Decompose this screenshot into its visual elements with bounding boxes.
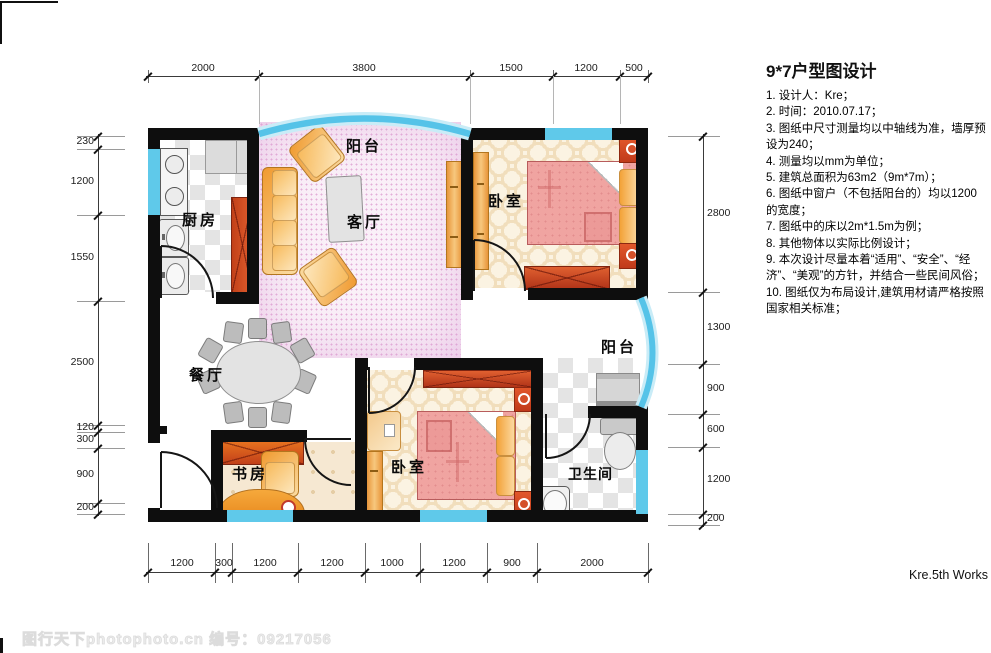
dim-tick: [668, 525, 720, 526]
designer-signature: Kre.5th Works: [868, 568, 988, 582]
dim-label: 2000: [181, 62, 225, 74]
dim-tick: [298, 543, 299, 583]
dim-tick: [648, 543, 649, 583]
dim-line: [703, 134, 704, 527]
dim-line: [146, 572, 650, 573]
dim-tick: [77, 215, 125, 216]
dim-tick: [537, 543, 538, 583]
note-line: 3. 图纸中尺寸测量均以中轴线为准，墙厚预设为240；: [766, 121, 988, 154]
dim-label: 1000: [370, 557, 414, 569]
extension-line: [259, 76, 260, 124]
note-line: 9. 本次设计尽量本着“适用”、“安全”、“经济”、“美观”的方针，并结合一些民…: [766, 252, 988, 285]
bathroom-door: [546, 414, 590, 458]
dim-line: [98, 134, 99, 516]
dim-label: 900: [60, 468, 94, 480]
dim-label: 1550: [60, 251, 94, 263]
room-label-kitchen: 厨房: [182, 209, 218, 230]
dim-tick: [148, 543, 149, 583]
bedroom1-door: [474, 240, 525, 291]
dim-tick: [668, 447, 720, 448]
dim-label: 1200: [160, 557, 204, 569]
dim-label: 2500: [60, 356, 94, 368]
page-title: 9*7户型图设计: [766, 57, 877, 82]
dim-label: 1300: [707, 321, 730, 333]
dim-label: 2000: [570, 557, 614, 569]
note-line: 8. 其他物体以实际比例设计；: [766, 236, 988, 252]
note-line: 1. 设计人：Kre；: [766, 88, 988, 104]
bedroom2-door: [369, 367, 415, 413]
extension-line: [553, 76, 554, 124]
extension-line: [470, 76, 471, 124]
floorplan-page: 阳台 厨房 客厅 卧室 餐厅 书房 卧室 卫生间 阳台 2000 3800 15…: [0, 0, 991, 653]
dim-tick: [668, 136, 720, 137]
note-line: 6. 图纸中窗户（不包括阳台的）均以1200的宽度；: [766, 186, 988, 219]
room-label-balcony-top: 阳台: [346, 135, 382, 156]
room-label-balcony-right: 阳台: [601, 336, 637, 357]
dim-label: 2800: [707, 207, 730, 219]
dim-label: 600: [707, 423, 725, 435]
room-label-living: 客厅: [347, 211, 383, 232]
dim-label: 900: [490, 557, 534, 569]
dim-label: 1500: [489, 62, 533, 74]
dim-label: 300: [60, 433, 94, 445]
dim-tick: [487, 543, 488, 583]
extension-line: [620, 76, 621, 124]
dim-tick: [365, 543, 366, 583]
dim-label: 120: [60, 421, 94, 433]
dim-label: 1200: [60, 175, 94, 187]
entrance-door: [161, 452, 217, 508]
room-label-bedroom2: 卧室: [391, 456, 427, 477]
room-label-dining: 餐厅: [189, 364, 225, 385]
note-line: 4. 测量均以mm为单位；: [766, 154, 988, 170]
room-label-study: 书房: [232, 463, 268, 484]
dim-label: 1200: [310, 557, 354, 569]
design-notes: 1. 设计人：Kre； 2. 时间：2010.07.17； 3. 图纸中尺寸测量…: [766, 88, 988, 318]
dim-label: 300: [202, 557, 246, 569]
note-line: 2. 时间：2010.07.17；: [766, 104, 988, 120]
room-label-bedroom1: 卧室: [488, 190, 524, 211]
dim-label: 3800: [342, 62, 386, 74]
dim-tick: [668, 414, 720, 415]
dim-line: [146, 76, 650, 77]
note-line: 7. 图纸中的床以2m*1.5m为例；: [766, 219, 988, 235]
dim-tick: [77, 301, 125, 302]
dim-label: 200: [707, 512, 725, 524]
dim-tick: [77, 514, 125, 515]
dim-label: 500: [612, 62, 656, 74]
note-line: 5. 建筑总面积为63m2（9m*7m）；: [766, 170, 988, 186]
dim-tick: [77, 149, 125, 150]
study-door: [305, 439, 351, 485]
dim-label: 230: [60, 135, 94, 147]
kitchen-door: [161, 246, 213, 298]
dim-tick: [668, 292, 720, 293]
dim-label: 1200: [707, 473, 730, 485]
note-line: 10. 图纸仅为布局设计,建筑用材请严格按照国家相关标准；: [766, 285, 988, 318]
dim-label: 1200: [564, 62, 608, 74]
dim-label: 200: [60, 501, 94, 513]
dim-tick: [420, 543, 421, 583]
dim-label: 900: [707, 382, 725, 394]
dim-label: 1200: [243, 557, 287, 569]
dim-tick: [77, 448, 125, 449]
dim-tick: [668, 364, 720, 365]
room-label-bathroom: 卫生间: [568, 464, 613, 484]
watermark: 图行天下photophoto.cn 编号：09217056: [22, 628, 332, 649]
dim-label: 1200: [432, 557, 476, 569]
